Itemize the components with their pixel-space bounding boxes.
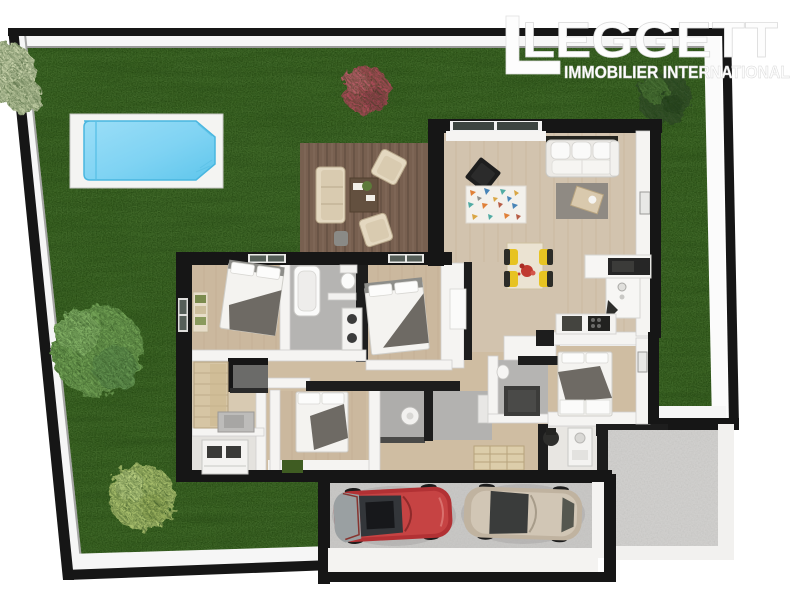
svg-text:IMMOBILIER INTERNATIONAL: IMMOBILIER INTERNATIONAL: [564, 62, 790, 82]
svg-text:LEGGETT: LEGGETT: [522, 12, 778, 68]
